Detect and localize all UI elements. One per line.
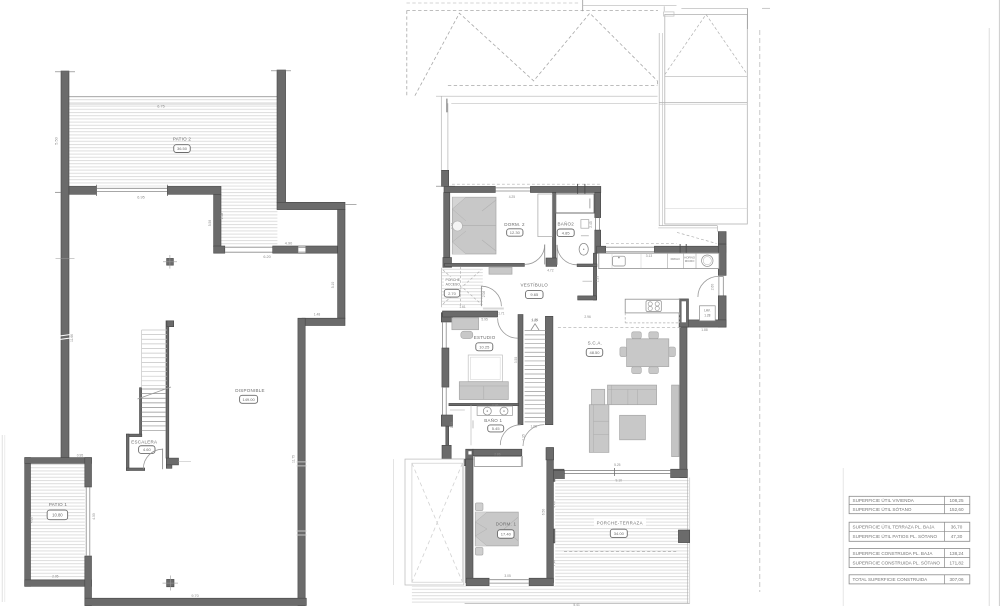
svg-text:PATIO 2: PATIO 2 bbox=[173, 137, 192, 142]
svg-text:152,60: 152,60 bbox=[949, 507, 963, 512]
svg-text:47,30: 47,30 bbox=[951, 534, 963, 539]
svg-text:4.00: 4.00 bbox=[92, 513, 96, 520]
svg-text:3.55: 3.55 bbox=[514, 357, 518, 364]
svg-text:1.35: 1.35 bbox=[531, 318, 538, 322]
svg-text:1.28: 1.28 bbox=[704, 313, 710, 317]
svg-text:5.50: 5.50 bbox=[54, 137, 58, 144]
svg-text:48.50: 48.50 bbox=[589, 350, 600, 355]
svg-text:11.66: 11.66 bbox=[70, 334, 74, 342]
svg-text:9.10: 9.10 bbox=[615, 478, 622, 482]
svg-text:1.88: 1.88 bbox=[701, 328, 708, 332]
svg-text:2.70: 2.70 bbox=[448, 291, 457, 296]
svg-text:5.95: 5.95 bbox=[481, 317, 488, 321]
svg-text:BAÑO 1: BAÑO 1 bbox=[484, 417, 502, 423]
svg-text:17.40: 17.40 bbox=[501, 532, 512, 537]
svg-text:2.45: 2.45 bbox=[589, 221, 593, 228]
svg-text:LAV.: LAV. bbox=[704, 309, 711, 313]
svg-text:2.58: 2.58 bbox=[220, 213, 224, 220]
svg-text:VESTÍBULO: VESTÍBULO bbox=[521, 282, 549, 288]
svg-text:MICRO: MICRO bbox=[685, 259, 695, 263]
svg-text:6.50: 6.50 bbox=[541, 509, 545, 516]
svg-text:6.95: 6.95 bbox=[137, 196, 144, 200]
svg-text:11.75: 11.75 bbox=[292, 455, 296, 463]
svg-text:SUPERFICIE ÚTIL SÓTANO: SUPERFICIE ÚTIL SÓTANO bbox=[853, 506, 912, 512]
svg-text:TOTAL SUPERFICIE CONSTRUIDA: TOTAL SUPERFICIE CONSTRUIDA bbox=[853, 577, 929, 582]
svg-text:2.86: 2.86 bbox=[494, 453, 501, 457]
svg-text:2.05: 2.05 bbox=[52, 574, 59, 578]
svg-text:5.25: 5.25 bbox=[614, 463, 621, 467]
svg-text:9.65: 9.65 bbox=[530, 292, 539, 297]
svg-text:4.60: 4.60 bbox=[143, 447, 152, 452]
svg-text:4.60: 4.60 bbox=[30, 517, 34, 524]
svg-text:307,06: 307,06 bbox=[949, 577, 963, 582]
svg-text:12.30: 12.30 bbox=[510, 230, 521, 235]
svg-text:DISPONIBLE: DISPONIBLE bbox=[235, 388, 265, 393]
svg-text:171,82: 171,82 bbox=[949, 560, 963, 565]
svg-text:1.93: 1.93 bbox=[596, 276, 600, 283]
svg-text:4.90: 4.90 bbox=[285, 242, 292, 246]
svg-text:1.35: 1.35 bbox=[521, 434, 525, 441]
svg-text:4.25: 4.25 bbox=[509, 195, 516, 199]
svg-text:DORM. 2: DORM. 2 bbox=[504, 222, 525, 227]
svg-text:FRIGO: FRIGO bbox=[671, 257, 681, 261]
svg-text:1.66: 1.66 bbox=[530, 425, 537, 429]
svg-text:SUPERFICIE ÚTIL PATIOS PL. SÓT: SUPERFICIE ÚTIL PATIOS PL. SÓTANO bbox=[853, 533, 938, 539]
svg-text:BAÑO2: BAÑO2 bbox=[557, 220, 574, 226]
svg-text:ACCESO: ACCESO bbox=[446, 283, 461, 287]
svg-text:DORM. 1: DORM. 1 bbox=[496, 522, 517, 527]
svg-text:1.85: 1.85 bbox=[450, 422, 454, 429]
svg-text:2.08: 2.08 bbox=[482, 291, 486, 298]
svg-text:149.00: 149.00 bbox=[242, 397, 255, 402]
svg-text:3.13: 3.13 bbox=[646, 254, 653, 258]
svg-text:1.71: 1.71 bbox=[498, 312, 505, 316]
svg-text:4.72: 4.72 bbox=[547, 269, 554, 273]
svg-text:S.C.A.: S.C.A. bbox=[588, 340, 603, 345]
svg-text:SUPERFICIE CONSTRUIDA PL. SÓTA: SUPERFICIE CONSTRUIDA PL. SÓTANO bbox=[853, 559, 941, 565]
svg-text:6.20: 6.20 bbox=[263, 255, 270, 259]
svg-text:SUPERFICIE ÚTIL VIVIENDA: SUPERFICIE ÚTIL VIVIENDA bbox=[853, 497, 915, 503]
svg-text:108,25: 108,25 bbox=[949, 498, 963, 503]
svg-text:6.75: 6.75 bbox=[157, 105, 164, 109]
svg-text:ESCALERA: ESCALERA bbox=[131, 440, 157, 445]
svg-text:3.05: 3.05 bbox=[504, 574, 511, 578]
svg-text:2.96: 2.96 bbox=[584, 315, 591, 319]
svg-text:PATIO 1: PATIO 1 bbox=[49, 502, 68, 507]
svg-text:138,24: 138,24 bbox=[949, 551, 963, 556]
svg-text:SUPERFICIE ÚTIL TERRAZA PL. BA: SUPERFICIE ÚTIL TERRAZA PL. BAJA bbox=[853, 523, 936, 529]
svg-text:0.95: 0.95 bbox=[77, 453, 84, 457]
svg-text:SUPERFICIE CONSTRUIDA PL. BAJA: SUPERFICIE CONSTRUIDA PL. BAJA bbox=[853, 551, 934, 556]
svg-text:36.50: 36.50 bbox=[177, 146, 188, 151]
svg-text:5.59: 5.59 bbox=[208, 220, 212, 227]
svg-text:9.70: 9.70 bbox=[191, 594, 198, 598]
svg-text:5.45: 5.45 bbox=[492, 426, 501, 431]
svg-text:10.80: 10.80 bbox=[52, 513, 63, 518]
svg-text:4.85: 4.85 bbox=[562, 230, 571, 235]
svg-text:10.25: 10.25 bbox=[479, 344, 490, 349]
svg-text:PORCHE-TERRAZA: PORCHE-TERRAZA bbox=[597, 520, 643, 525]
svg-text:5.10: 5.10 bbox=[331, 282, 335, 289]
svg-text:36,70: 36,70 bbox=[951, 524, 963, 529]
svg-text:PORCHE: PORCHE bbox=[446, 278, 461, 282]
svg-text:1.48: 1.48 bbox=[314, 312, 321, 316]
svg-text:2.60: 2.60 bbox=[710, 284, 714, 291]
svg-text:34.00: 34.00 bbox=[614, 531, 625, 536]
svg-text:ESTUDIO: ESTUDIO bbox=[474, 335, 496, 340]
